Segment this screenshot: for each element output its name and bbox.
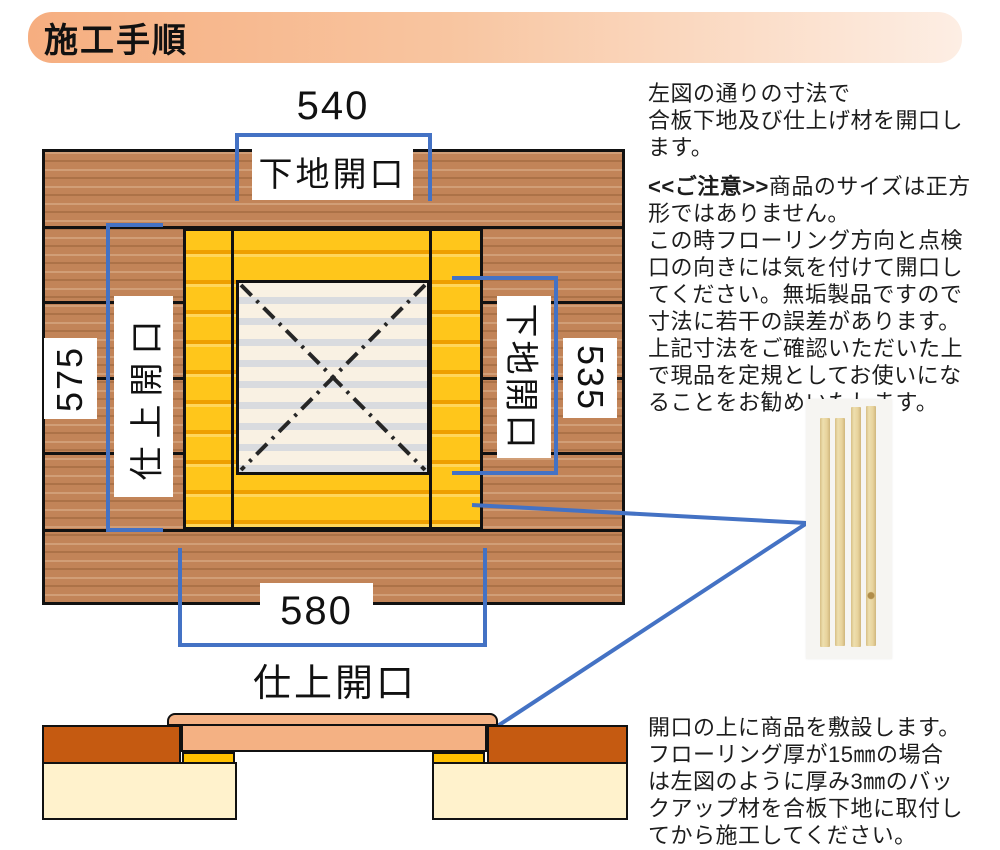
dim-left-value-box: 575 bbox=[44, 338, 97, 419]
dim-bottom-label: 仕上開口 bbox=[245, 652, 425, 707]
text-line: 寸法に若干の誤差があります。 bbox=[648, 308, 994, 335]
text-line: 開口の上に商品を敷設します。 bbox=[648, 714, 994, 741]
text-line: フローリング厚が15㎜の場合 bbox=[648, 741, 994, 768]
backup-strip-section-left bbox=[182, 752, 235, 764]
instruction-paragraph-1: 左図の通りの寸法で 合板下地及び仕上げ材を開口し ます。 bbox=[648, 80, 994, 161]
dim-bottom-value: 580 bbox=[280, 589, 353, 634]
backup-strip bbox=[866, 406, 876, 646]
text-line: <<ご注意>>商品のサイズは正方 bbox=[648, 173, 994, 200]
text-line: で現品を定規としてお使いにな bbox=[648, 362, 994, 389]
text-line: てください。無垢製品ですので bbox=[648, 281, 994, 308]
diagonal-cross-marks bbox=[239, 283, 427, 472]
dim-left-value: 575 bbox=[50, 345, 92, 411]
substrate-opening-panel bbox=[236, 280, 430, 475]
flooring-left bbox=[42, 725, 181, 764]
dim-left-label-box: 仕上開口 bbox=[114, 296, 173, 497]
text-line: 形ではありません。 bbox=[648, 200, 994, 227]
backup-strip-section-right bbox=[432, 752, 485, 764]
dim-top-label-box: 下地開口 bbox=[252, 143, 413, 200]
text-line: この時フローリング方向と点検 bbox=[648, 227, 994, 254]
dim-top-value: 540 bbox=[270, 84, 396, 129]
title-banner: 施工手順 bbox=[28, 12, 962, 63]
access-panel-lip bbox=[167, 713, 498, 726]
backup-strip bbox=[820, 418, 830, 647]
plywood-substrate-right bbox=[432, 762, 628, 820]
frame-divider-left bbox=[231, 228, 234, 530]
text-line: てから施工してください。 bbox=[648, 822, 994, 849]
notice-prefix: <<ご注意>> bbox=[648, 174, 769, 199]
text-line: 左図の通りの寸法で bbox=[648, 80, 994, 107]
text-line: 上記寸法をご確認いただいた上 bbox=[648, 335, 994, 362]
dim-top-label: 下地開口 bbox=[259, 147, 407, 196]
plywood-substrate-left bbox=[42, 762, 237, 820]
text-line: クアップ材を合板下地に取付し bbox=[648, 795, 994, 822]
text-line: 合板下地及び仕上げ材を開口し bbox=[648, 107, 994, 134]
text-line: は左図のように厚み3㎜のバッ bbox=[648, 768, 994, 795]
text-line: 口の向きには気を付けて開口し bbox=[648, 254, 994, 281]
page-title: 施工手順 bbox=[28, 13, 188, 62]
dim-right-label-box: 下地開口 bbox=[497, 296, 551, 458]
text-line: 商品のサイズは正方 bbox=[769, 174, 971, 199]
instruction-page: 施工手順 540 下地開口 575 仕上開口 下地開口 535 5 bbox=[0, 0, 1000, 850]
backup-strip bbox=[835, 418, 845, 646]
dim-bottom-value-box: 580 bbox=[260, 583, 373, 640]
installation-paragraph: 開口の上に商品を敷設します。 フローリング厚が15㎜の場合 は左図のように厚み3… bbox=[648, 714, 994, 849]
backup-strips-photo bbox=[806, 399, 892, 659]
notice-paragraph: <<ご注意>>商品のサイズは正方 形ではありません。 この時フローリング方向と点… bbox=[648, 173, 994, 416]
dim-left-label: 仕上開口 bbox=[119, 313, 168, 481]
dim-right-label: 下地開口 bbox=[500, 303, 549, 451]
access-panel-body bbox=[181, 723, 487, 752]
backup-strip bbox=[851, 407, 861, 647]
flooring-right bbox=[487, 725, 628, 764]
text-line: ます。 bbox=[648, 134, 994, 161]
dim-right-value-box: 535 bbox=[563, 338, 617, 418]
dim-right-value: 535 bbox=[569, 345, 611, 411]
